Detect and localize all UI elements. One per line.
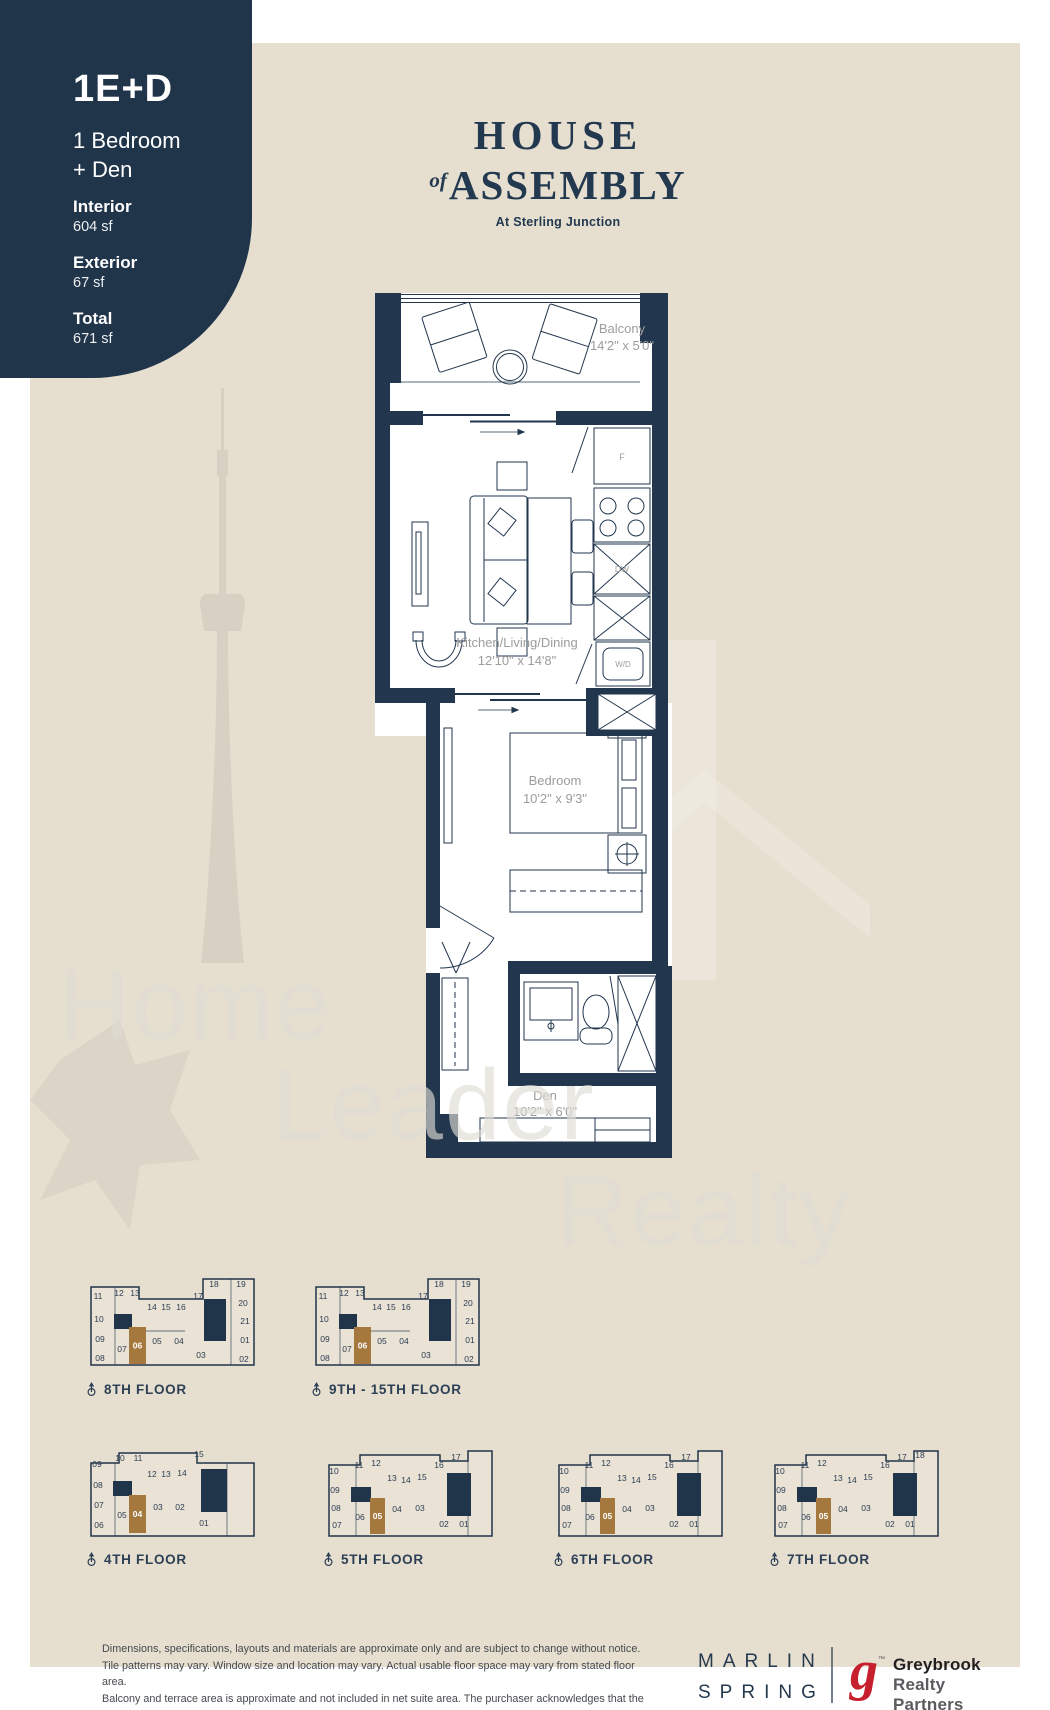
keyplan-unit-number: 02 bbox=[239, 1354, 249, 1364]
brand-house: HOUSE bbox=[358, 113, 758, 157]
marlin-line1: MARLIN bbox=[698, 1646, 825, 1677]
keyplan-unit-number: 20 bbox=[463, 1298, 473, 1308]
keyplan-7th-floor: 0510111213141516171809080706040302017TH … bbox=[768, 1446, 948, 1567]
bedroom-label: Bedroom bbox=[529, 773, 582, 788]
keyplan-label-text: 9TH - 15TH FLOOR bbox=[329, 1382, 462, 1397]
kld-dims: 12'10" x 14'8" bbox=[478, 653, 557, 668]
balcony-dims: 14'2" x 5'0" bbox=[590, 338, 654, 353]
keyplan-unit-number: 01 bbox=[465, 1335, 475, 1345]
keyplan-unit-number: 16 bbox=[401, 1302, 411, 1312]
keyplan-unit-number: 02 bbox=[439, 1519, 449, 1529]
stat-value: 671 sf bbox=[73, 330, 137, 349]
keyplan-unit-number: 03 bbox=[196, 1350, 206, 1360]
brand-tagline: At Sterling Junction bbox=[358, 215, 758, 229]
keyplan-unit-number: 11 bbox=[94, 1291, 103, 1301]
maple-leaf-watermark bbox=[30, 1020, 200, 1230]
keyplan-unit-number: 07 bbox=[778, 1520, 788, 1530]
keyplan-unit-number: 17 bbox=[193, 1291, 203, 1301]
keyplan-unit-number: 06 bbox=[355, 1512, 365, 1522]
greybrook-name: Greybrook bbox=[893, 1655, 1020, 1675]
keyplan-unit-number: 15 bbox=[863, 1472, 873, 1482]
keyplan-unit-number: 06 bbox=[94, 1520, 104, 1530]
brand-logo: HOUSE ofASSEMBLY At Sterling Junction bbox=[358, 113, 758, 229]
keyplan-unit-number: 18 bbox=[434, 1279, 444, 1289]
keyplan-unit-number: 07 bbox=[117, 1344, 127, 1354]
keyplan-unit-number: 08 bbox=[320, 1353, 330, 1363]
trademark-icon: ™ bbox=[878, 1656, 885, 1663]
keyplan-unit-number: 01 bbox=[689, 1519, 699, 1529]
keyplan-unit-number: 15 bbox=[386, 1302, 396, 1312]
north-arrow-icon bbox=[322, 1552, 335, 1567]
keyplan-core bbox=[893, 1473, 917, 1516]
north-arrow-icon bbox=[768, 1552, 781, 1567]
keyplan-unit-number: 03 bbox=[153, 1502, 163, 1512]
keyplan-unit-number: 02 bbox=[464, 1354, 474, 1364]
keyplan-unit-number: 05 bbox=[377, 1336, 387, 1346]
keyplan-unit-number: 04 bbox=[174, 1336, 184, 1346]
keyplan-unit-number: 08 bbox=[777, 1503, 787, 1513]
keyplan-8th-floor: 0611121314151617181920210102100908070504… bbox=[85, 1276, 265, 1397]
keyplan-core bbox=[204, 1299, 226, 1341]
keyplan-core bbox=[797, 1487, 817, 1502]
logo-divider bbox=[831, 1647, 833, 1703]
keyplan-unit-number: 04 bbox=[838, 1504, 848, 1514]
bedroom-dims: 10'2" x 9'3" bbox=[523, 791, 587, 806]
brand-assembly: ASSEMBLY bbox=[449, 162, 687, 208]
keyplan-unit-number: 03 bbox=[645, 1503, 655, 1513]
keyplan-core bbox=[447, 1473, 471, 1516]
keyplan-unit-number: 10 bbox=[329, 1466, 339, 1476]
keyplan-diagram: 0611121314151617181920210102100908070504… bbox=[85, 1276, 260, 1368]
keyplan-unit-number: 15 bbox=[194, 1449, 204, 1459]
keyplan-unit-number: 10 bbox=[775, 1466, 785, 1476]
keyplan-unit-number: 11 bbox=[319, 1291, 328, 1301]
disclaimer-line: Tile patterns may vary. Window size and … bbox=[102, 1658, 662, 1691]
keyplan-unit-number: 13 bbox=[161, 1469, 171, 1479]
keyplan-unit-number: 12 bbox=[817, 1458, 827, 1468]
keyplan-label: 6TH FLOOR bbox=[552, 1552, 732, 1567]
stat-exterior: Exterior 67 sf bbox=[73, 252, 137, 293]
keyplan-unit-number: 02 bbox=[175, 1502, 185, 1512]
keyplan-unit-number: 08 bbox=[331, 1503, 341, 1513]
unit-type-line1: 1 Bedroom bbox=[73, 126, 181, 155]
keyplan-highlighted-unit-number: 05 bbox=[603, 1511, 613, 1521]
keyplan-core bbox=[201, 1469, 227, 1512]
flyer-page: Balcony 14'2" x 5'0" Kitchen/Living/Dini… bbox=[0, 0, 1050, 1710]
keyplan-unit-number: 08 bbox=[95, 1353, 105, 1363]
keyplan-unit-number: 21 bbox=[240, 1316, 250, 1326]
keyplan-diagram: 0611121314151617181920210102100908070504… bbox=[310, 1276, 485, 1368]
keyplan-unit-number: 16 bbox=[176, 1302, 186, 1312]
dw-label: DW bbox=[615, 564, 629, 574]
keyplan-unit-number: 09 bbox=[95, 1334, 105, 1344]
keyplan-unit-number: 01 bbox=[240, 1335, 250, 1345]
keyplan-label: 8TH FLOOR bbox=[85, 1382, 265, 1397]
keyplan-4th-floor: 0409101112131415080706050302014TH FLOOR bbox=[85, 1446, 265, 1567]
greybrook-logo: g™ Greybrook Realty Partners bbox=[850, 1645, 1020, 1710]
keyplan-highlighted-unit-number: 06 bbox=[358, 1341, 368, 1351]
keyplan-core bbox=[677, 1473, 701, 1516]
stat-value: 67 sf bbox=[73, 274, 137, 293]
keyplan-unit-number: 10 bbox=[559, 1466, 569, 1476]
keyplan-unit-number: 10 bbox=[319, 1314, 329, 1324]
keyplan-unit-number: 12 bbox=[601, 1458, 611, 1468]
keyplan-label: 9TH - 15TH FLOOR bbox=[310, 1382, 490, 1397]
keyplan-unit-number: 19 bbox=[461, 1279, 471, 1289]
keyplan-unit-number: 14 bbox=[147, 1302, 157, 1312]
keyplan-9th-15th-floor: 0611121314151617181920210102100908070504… bbox=[310, 1276, 490, 1397]
keyplan-unit-number: 15 bbox=[417, 1472, 427, 1482]
keyplan-unit-number: 12 bbox=[371, 1458, 381, 1468]
keyplan-unit-number: 08 bbox=[93, 1480, 103, 1490]
keyplan-unit-number: 04 bbox=[399, 1336, 409, 1346]
keyplan-label: 4TH FLOOR bbox=[85, 1552, 265, 1567]
keyplan-label: 7TH FLOOR bbox=[768, 1552, 948, 1567]
marlin-line2: SPRING bbox=[698, 1677, 825, 1708]
keyplan-unit-number: 13 bbox=[617, 1473, 627, 1483]
keyplan-6th-floor: 05101112131415161709080706040302016TH FL… bbox=[552, 1446, 732, 1567]
keyplan-unit-number: 11 bbox=[134, 1453, 143, 1463]
cn-tower-watermark bbox=[200, 388, 245, 963]
stat-interior: Interior 604 sf bbox=[73, 196, 137, 237]
den-label: Den bbox=[533, 1088, 557, 1103]
keyplan-label-text: 7TH FLOOR bbox=[787, 1552, 870, 1567]
keyplan-unit-number: 13 bbox=[387, 1473, 397, 1483]
balcony-label: Balcony bbox=[599, 321, 646, 336]
keyplan-label-text: 6TH FLOOR bbox=[571, 1552, 654, 1567]
north-arrow-icon bbox=[310, 1382, 323, 1397]
keyplan-unit-number: 21 bbox=[465, 1316, 475, 1326]
keyplan-unit-number: 17 bbox=[451, 1452, 461, 1462]
north-arrow-icon bbox=[85, 1552, 98, 1567]
keyplan-core bbox=[113, 1481, 132, 1496]
keyplan-core bbox=[114, 1314, 132, 1329]
keyplan-label: 5TH FLOOR bbox=[322, 1552, 502, 1567]
keyplan-unit-number: 11 bbox=[801, 1460, 810, 1470]
keyplan-unit-number: 09 bbox=[92, 1459, 102, 1469]
keyplan-unit-number: 18 bbox=[209, 1279, 219, 1289]
keyplan-label-text: 8TH FLOOR bbox=[104, 1382, 187, 1397]
keyplan-unit-number: 14 bbox=[631, 1475, 641, 1485]
keyplan-unit-number: 01 bbox=[905, 1519, 915, 1529]
keyplan-unit-number: 06 bbox=[585, 1512, 595, 1522]
keyplan-unit-number: 13 bbox=[355, 1288, 365, 1298]
keyplan-unit-number: 17 bbox=[897, 1452, 907, 1462]
keyplan-unit-number: 15 bbox=[161, 1302, 171, 1312]
keyplan-unit-number: 16 bbox=[434, 1460, 444, 1470]
greybrook-g-icon: g bbox=[850, 1640, 878, 1702]
greybrook-sub: Realty Partners bbox=[893, 1675, 1020, 1710]
keyplan-unit-number: 08 bbox=[561, 1503, 571, 1513]
stat-total: Total 671 sf bbox=[73, 308, 137, 349]
keyplan-core bbox=[351, 1487, 371, 1502]
keyplan-diagram: 0510111213141516170908070604030201 bbox=[552, 1446, 727, 1538]
den-dims: 10'2" x 6'0" bbox=[513, 1104, 577, 1119]
marlin-spring-logo: MARLIN SPRING bbox=[698, 1646, 825, 1708]
keyplan-unit-number: 14 bbox=[401, 1475, 411, 1485]
unit-code: 1E+D bbox=[73, 68, 173, 111]
keyplan-unit-number: 04 bbox=[622, 1504, 632, 1514]
floorplan: Balcony 14'2" x 5'0" Kitchen/Living/Dini… bbox=[360, 276, 690, 1161]
stat-label: Total bbox=[73, 308, 137, 330]
fridge-label: F bbox=[619, 452, 625, 462]
keyplan-unit-number: 14 bbox=[372, 1302, 382, 1312]
keyplan-unit-number: 07 bbox=[342, 1344, 352, 1354]
keyplan-unit-number: 03 bbox=[415, 1503, 425, 1513]
keyplan-unit-number: 18 bbox=[915, 1450, 925, 1460]
keyplan-unit-number: 09 bbox=[320, 1334, 330, 1344]
keyplan-unit-number: 10 bbox=[94, 1314, 104, 1324]
north-arrow-icon bbox=[85, 1382, 98, 1397]
unit-stats: Interior 604 sf Exterior 67 sf Total 671… bbox=[73, 196, 137, 364]
keyplan-unit-number: 19 bbox=[236, 1279, 246, 1289]
keyplan-unit-number: 07 bbox=[562, 1520, 572, 1530]
keyplan-unit-number: 16 bbox=[664, 1460, 674, 1470]
north-arrow-icon bbox=[552, 1552, 565, 1567]
keyplan-label-text: 4TH FLOOR bbox=[104, 1552, 187, 1567]
keyplan-unit-number: 20 bbox=[238, 1298, 248, 1308]
keyplan-unit-number: 12 bbox=[147, 1469, 157, 1479]
keyplan-highlighted-unit-number: 04 bbox=[133, 1509, 143, 1519]
unit-type: 1 Bedroom + Den bbox=[73, 126, 181, 184]
brand-of: of bbox=[429, 168, 447, 192]
keyplan-unit-number: 09 bbox=[776, 1485, 786, 1495]
keyplan-unit-number: 01 bbox=[199, 1518, 209, 1528]
keyplan-unit-number: 17 bbox=[418, 1291, 428, 1301]
keyplan-core bbox=[429, 1299, 451, 1341]
keyplan-unit-number: 09 bbox=[330, 1485, 340, 1495]
keyplan-5th-floor: 05101112131415161709080706040302015TH FL… bbox=[322, 1446, 502, 1567]
keyplan-unit-number: 06 bbox=[801, 1512, 811, 1522]
keyplan-highlighted-unit-number: 06 bbox=[133, 1341, 143, 1351]
wd-label: W/D bbox=[615, 660, 631, 669]
disclaimer-line: Balcony and terrace area is approximate … bbox=[102, 1691, 662, 1708]
keyplan-unit-number: 15 bbox=[647, 1472, 657, 1482]
keyplan-unit-number: 03 bbox=[861, 1503, 871, 1513]
keyplan-unit-number: 05 bbox=[117, 1510, 127, 1520]
keyplan-highlighted-unit-number: 05 bbox=[819, 1511, 829, 1521]
keyplan-diagram: 0510111213141516170908070604030201 bbox=[322, 1446, 497, 1538]
stat-label: Interior bbox=[73, 196, 137, 218]
keyplan-unit-number: 14 bbox=[177, 1468, 187, 1478]
keyplan-unit-number: 17 bbox=[681, 1452, 691, 1462]
keyplan-label-text: 5TH FLOOR bbox=[341, 1552, 424, 1567]
keyplan-unit-number: 11 bbox=[585, 1460, 594, 1470]
keyplan-unit-number: 16 bbox=[880, 1460, 890, 1470]
stat-label: Exterior bbox=[73, 252, 137, 274]
keyplan-unit-number: 02 bbox=[669, 1519, 679, 1529]
disclaimer-line: Dimensions, specifications, layouts and … bbox=[102, 1641, 662, 1658]
keyplan-unit-number: 04 bbox=[392, 1504, 402, 1514]
keyplan-unit-number: 02 bbox=[885, 1519, 895, 1529]
keyplan-unit-number: 14 bbox=[847, 1475, 857, 1485]
keyplan-unit-number: 05 bbox=[152, 1336, 162, 1346]
keyplan-unit-number: 10 bbox=[115, 1453, 125, 1463]
brand-assembly-line: ofASSEMBLY bbox=[358, 157, 758, 208]
keyplan-unit-number: 01 bbox=[459, 1519, 469, 1529]
keyplan-unit-number: 13 bbox=[833, 1473, 843, 1483]
keyplan-unit-number: 11 bbox=[355, 1460, 364, 1470]
keyplan-unit-number: 03 bbox=[421, 1350, 431, 1360]
keyplan-diagram: 051011121314151617180908070604030201 bbox=[768, 1446, 943, 1538]
keyplan-highlighted-unit-number: 05 bbox=[373, 1511, 383, 1521]
stat-value: 604 sf bbox=[73, 218, 137, 237]
disclaimer: Dimensions, specifications, layouts and … bbox=[102, 1641, 662, 1710]
keyplan-unit-number: 07 bbox=[94, 1500, 104, 1510]
unit-type-line2: + Den bbox=[73, 155, 181, 184]
keyplan-diagram: 040910111213141508070605030201 bbox=[85, 1446, 260, 1538]
keyplan-unit-number: 07 bbox=[332, 1520, 342, 1530]
keyplan-core bbox=[581, 1487, 601, 1502]
keyplan-unit-number: 09 bbox=[560, 1485, 570, 1495]
kld-label: Kitchen/Living/Dining bbox=[456, 635, 577, 650]
keyplan-unit-number: 12 bbox=[114, 1288, 124, 1298]
keyplan-unit-number: 13 bbox=[130, 1288, 140, 1298]
keyplan-core bbox=[339, 1314, 357, 1329]
keyplan-unit-number: 12 bbox=[339, 1288, 349, 1298]
